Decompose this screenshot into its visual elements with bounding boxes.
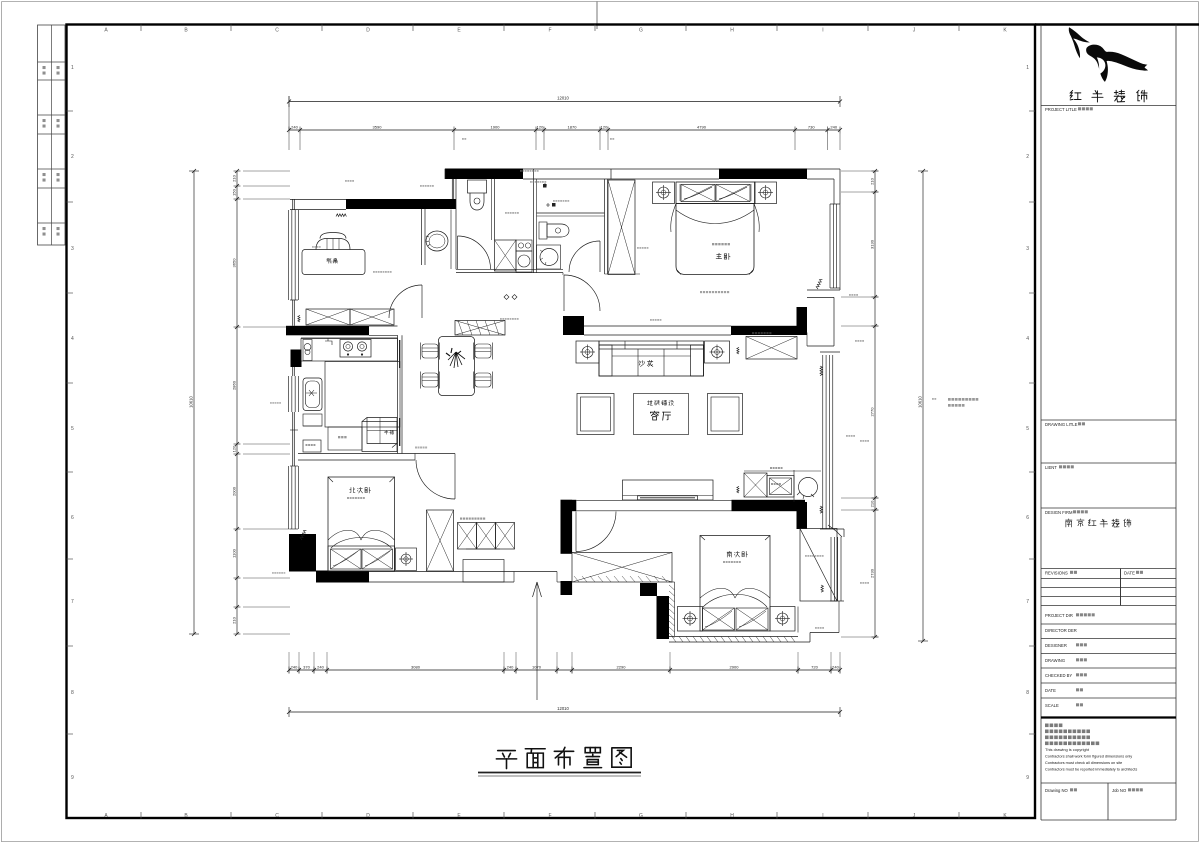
svg-text:150: 150 [232,188,237,195]
svg-text:2770: 2770 [870,407,875,417]
svg-text:210: 210 [870,500,875,507]
svg-text:720: 720 [811,665,818,670]
svg-text:CHECKED BY: CHECKED BY [1045,673,1072,678]
svg-text:8: 8 [71,690,74,696]
svg-text:3590: 3590 [373,125,383,130]
svg-text:3: 3 [71,246,74,252]
svg-text:9: 9 [71,775,74,781]
svg-text:240: 240 [832,665,839,670]
svg-text:PROJECT LITLE: PROJECT LITLE [1045,107,1077,112]
svg-text:G: G [639,813,643,819]
svg-text:1900: 1900 [491,125,501,130]
svg-text:LIENT: LIENT [1045,465,1057,470]
svg-text:12010: 12010 [557,96,569,101]
svg-text:2000: 2000 [232,486,237,496]
svg-text:Contractors must check all dim: Contractors must check all dimensions on… [1045,761,1122,765]
svg-text:240: 240 [830,125,837,130]
svg-text:DIRECTOR DER: DIRECTOR DER [1045,628,1077,633]
svg-text:240: 240 [507,665,514,670]
svg-text:1870: 1870 [568,125,578,130]
svg-text:This drawing is copyright: This drawing is copyright [1045,747,1090,752]
svg-text:210: 210 [870,177,875,184]
svg-text:Contractors must be reported i: Contractors must be reported immediately… [1045,768,1137,772]
svg-text:2290: 2290 [617,665,627,670]
svg-text:3: 3 [1026,246,1029,252]
svg-text:DRAWING: DRAWING [1045,658,1065,663]
svg-text:SCALE: SCALE [1045,703,1059,708]
svg-text:DRAWING LITLE: DRAWING LITLE [1045,422,1078,427]
svg-text:6: 6 [1026,515,1029,521]
svg-text:210: 210 [232,616,237,623]
svg-text:12010: 12010 [557,706,569,711]
svg-text:DESIGN FIRM: DESIGN FIRM [1045,510,1073,515]
svg-text:1070: 1070 [532,665,542,670]
svg-text:3130: 3130 [870,239,875,249]
svg-text:3650: 3650 [232,258,237,268]
svg-text:F: F [548,28,551,34]
svg-text:3080: 3080 [411,665,421,670]
svg-text:2: 2 [71,154,74,160]
svg-text:120: 120 [232,445,237,452]
svg-text:F: F [548,813,551,819]
svg-text:2860: 2860 [232,380,237,390]
svg-text:I: I [822,28,823,34]
svg-text:DATE: DATE [1045,688,1056,693]
svg-text:REVISIONS: REVISIONS [1045,571,1068,576]
svg-text:7: 7 [1026,599,1029,605]
svg-text:D: D [366,28,370,34]
svg-text:G: G [639,28,643,34]
svg-text:5: 5 [71,426,74,432]
svg-text:4790: 4790 [697,125,707,130]
svg-text:Contractors shall work form fi: Contractors shall work form figured dime… [1045,755,1132,759]
svg-text:240: 240 [291,665,298,670]
svg-text:2900: 2900 [730,665,740,670]
svg-text:2730: 2730 [870,568,875,578]
svg-text:Job NO: Job NO [1112,788,1127,793]
svg-text:370: 370 [303,665,310,670]
svg-text:210: 210 [232,174,237,181]
svg-text:H: H [730,813,734,819]
svg-text:6: 6 [71,515,74,521]
svg-text:4: 4 [71,336,74,342]
svg-text:H: H [730,28,734,34]
svg-text:PROJECT DIR: PROJECT DIR [1045,613,1073,618]
svg-text:8: 8 [1026,690,1029,696]
svg-text:D: D [366,813,370,819]
svg-text:DATE: DATE [1124,571,1135,576]
svg-text:120: 120 [537,125,544,130]
svg-text:4: 4 [1026,336,1029,342]
svg-text:7: 7 [71,599,74,605]
svg-text:9: 9 [1026,775,1029,781]
svg-text:730: 730 [808,125,815,130]
svg-text:Drawing NO: Drawing NO [1045,788,1069,793]
svg-text:10610: 10610 [918,396,923,408]
svg-text:120: 120 [601,125,608,130]
svg-text:1: 1 [71,65,74,71]
svg-text:DESIGNER: DESIGNER [1045,643,1067,648]
svg-text:10610: 10610 [189,396,194,408]
svg-text:1: 1 [1026,65,1029,71]
svg-text:I: I [822,813,823,819]
svg-text:2: 2 [1026,154,1029,160]
svg-text:1100: 1100 [232,548,237,557]
svg-text:240: 240 [317,665,324,670]
svg-text:C: C [275,28,279,34]
svg-text:240: 240 [291,125,298,130]
svg-text:C: C [275,813,279,819]
svg-text:5: 5 [1026,426,1029,432]
